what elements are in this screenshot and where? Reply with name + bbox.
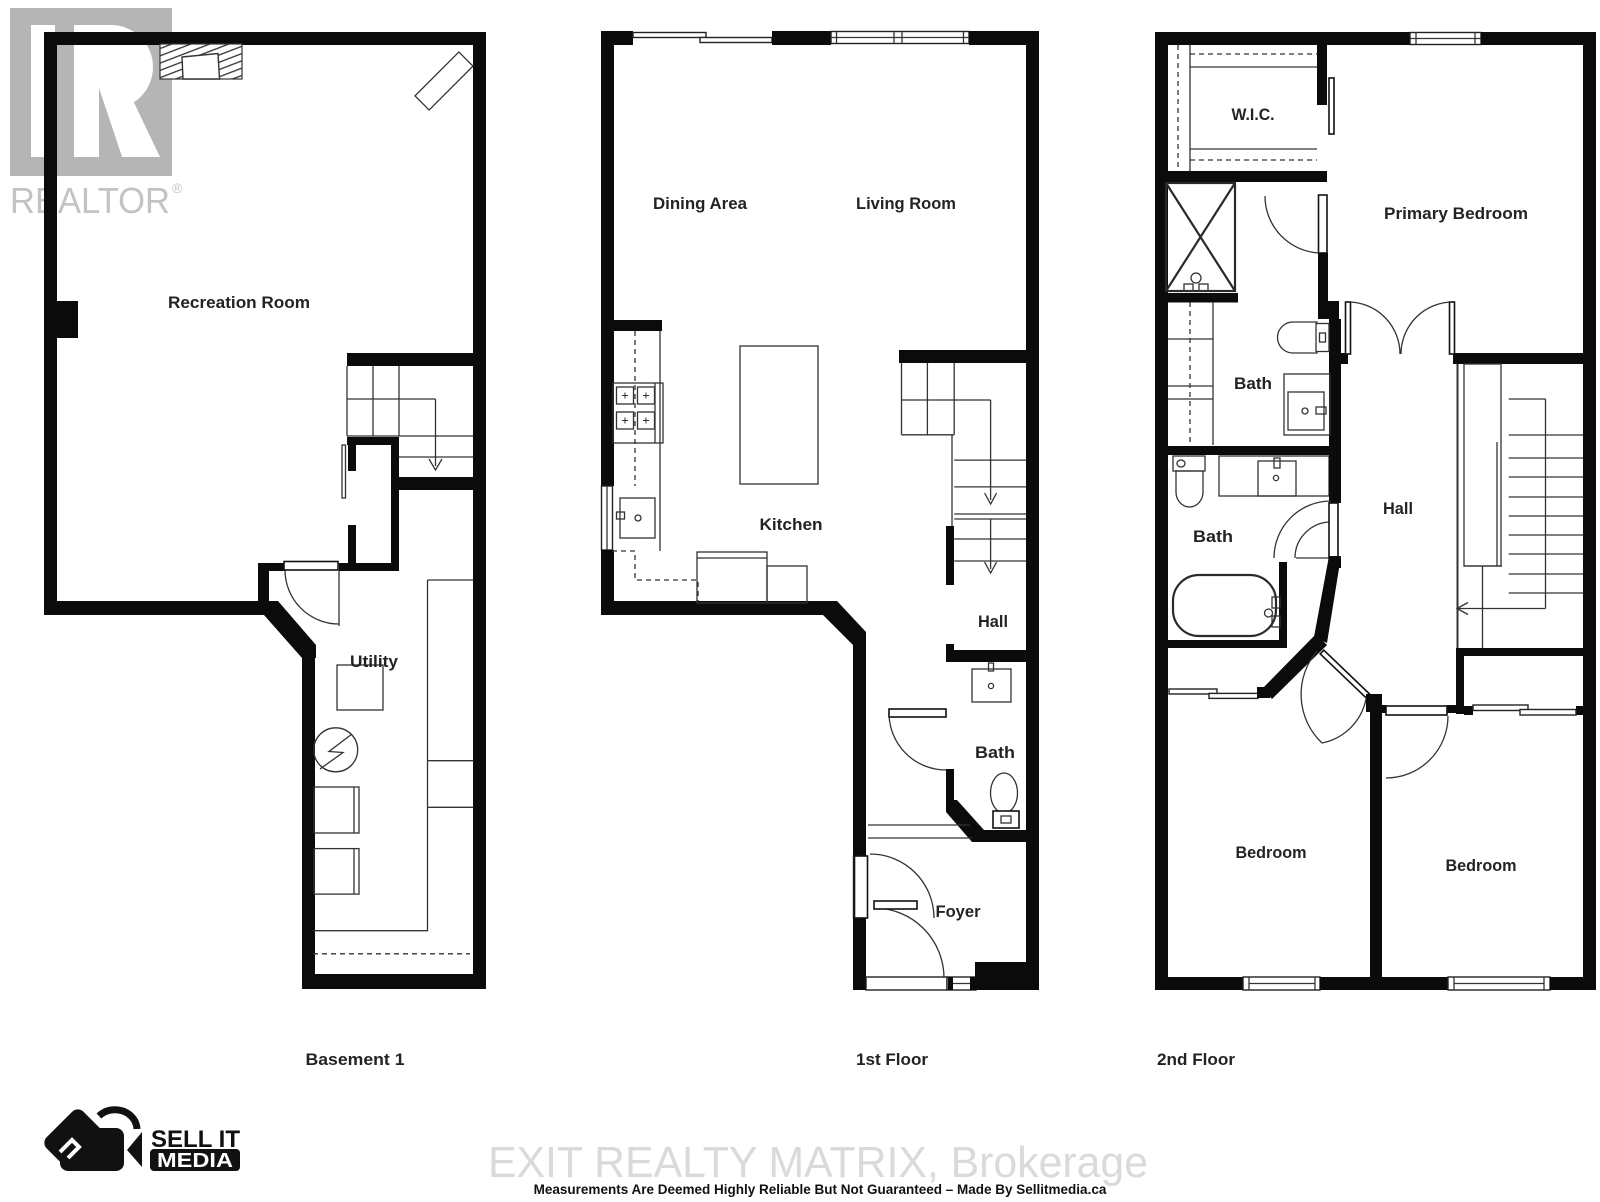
svg-text:Utility: Utility: [350, 652, 399, 671]
svg-text:Living Room: Living Room: [856, 194, 956, 213]
svg-text:2nd Floor: 2nd Floor: [1157, 1050, 1235, 1069]
svg-text:Bath: Bath: [1234, 374, 1272, 393]
svg-text:Primary Bedroom: Primary Bedroom: [1384, 204, 1528, 223]
svg-text:MEDIA: MEDIA: [157, 1150, 233, 1172]
svg-text:Basement 1: Basement 1: [306, 1050, 405, 1069]
svg-text:Bedroom: Bedroom: [1236, 843, 1307, 862]
svg-text:Kitchen: Kitchen: [760, 515, 823, 534]
svg-text:Bedroom: Bedroom: [1446, 856, 1517, 875]
svg-text:Foyer: Foyer: [936, 902, 981, 921]
svg-text:Dining Area: Dining Area: [653, 194, 748, 213]
svg-text:Bath: Bath: [1193, 527, 1233, 546]
svg-text:Measurements Are Deemed Highly: Measurements Are Deemed Highly Reliable …: [534, 1182, 1107, 1197]
svg-text:REALTOR: REALTOR: [10, 180, 170, 221]
svg-text:®: ®: [172, 180, 183, 196]
svg-text:Recreation Room: Recreation Room: [168, 293, 310, 312]
svg-text:1st Floor: 1st Floor: [856, 1050, 928, 1069]
svg-text:EXIT REALTY MATRIX, Brokerage: EXIT REALTY MATRIX, Brokerage: [488, 1138, 1148, 1187]
svg-text:W.I.C.: W.I.C.: [1232, 105, 1275, 124]
svg-text:Bath: Bath: [975, 743, 1015, 762]
svg-text:Hall: Hall: [978, 612, 1008, 631]
svg-text:SELL IT: SELL IT: [151, 1126, 240, 1153]
svg-text:Hall: Hall: [1383, 499, 1413, 518]
